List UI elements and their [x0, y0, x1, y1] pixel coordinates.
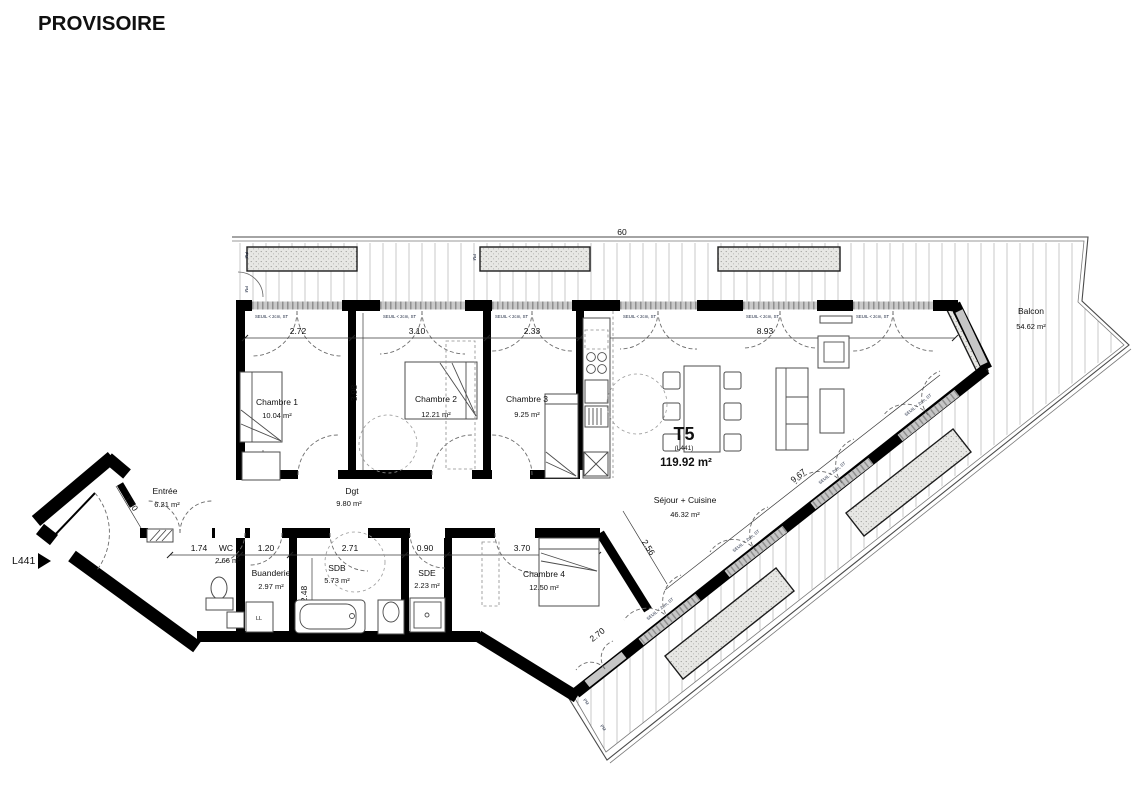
sill-label: SEUIL < 2cm, ST	[746, 314, 780, 319]
unit-marker-label: L441	[12, 555, 36, 567]
bed-chambre1	[240, 372, 282, 442]
room-area-dgt: 9.80 m²	[336, 499, 362, 508]
kitchen-sink	[585, 406, 608, 427]
railing-dim: 60	[617, 227, 627, 237]
room-name-sejour: Séjour + Cuisine	[654, 495, 717, 505]
dim-depth: 3.98	[349, 384, 359, 401]
sofa	[776, 368, 808, 450]
room-area-entree: 6.21 m²	[154, 500, 180, 509]
wc-counter	[206, 598, 233, 610]
room-area-chambre3: 9.25 m²	[514, 410, 540, 419]
room-name-chambre3: Chambre 3	[506, 394, 548, 404]
room-name-chambre1: Chambre 1	[256, 397, 298, 407]
room-area-wc: 2.66 m²	[215, 556, 241, 565]
room-area-chambre2: 12.21 m²	[421, 410, 451, 419]
closet	[242, 452, 280, 480]
dim-wc: 1.74	[191, 543, 208, 553]
door-swings	[52, 311, 940, 670]
planter	[247, 247, 357, 271]
dim-sejour-diag: 9.67	[789, 466, 808, 484]
wc-toilet	[227, 612, 244, 628]
washer-label: LL	[256, 616, 262, 622]
turning-circle	[607, 374, 667, 434]
room-name-sdb: SDB	[328, 563, 346, 573]
dim-sdb: 2.71	[342, 543, 359, 553]
turning-circle	[359, 415, 417, 473]
room-area-chambre1: 10.04 m²	[262, 411, 292, 420]
room-name-buanderie: Buanderie	[252, 568, 291, 578]
entry-door-arc	[95, 493, 109, 570]
dim-ch3: 2.33	[524, 326, 541, 336]
planter	[718, 247, 840, 271]
pm-marker: PM	[472, 254, 477, 261]
room-area-balcon: 54.62 m²	[1016, 322, 1046, 331]
dim-ch4: 3.70	[514, 543, 531, 553]
shower	[410, 598, 445, 632]
floorplan-drawing: 60 PM PM PM PM PM	[0, 0, 1143, 800]
bed-chambre3	[545, 394, 578, 478]
apartment-type: T5	[673, 424, 694, 444]
room-name-dgt: Dgt	[345, 486, 359, 496]
chair	[724, 372, 741, 389]
room-name-sde: SDE	[418, 568, 436, 578]
sdb-counter	[378, 600, 404, 634]
radiator	[820, 316, 852, 323]
floorplan-sheet: 60 PM PM PM PM PM	[0, 0, 1143, 800]
room-name-chambre4: Chambre 4	[523, 569, 565, 579]
unit-marker-arrow-icon	[38, 553, 51, 569]
planter	[480, 247, 590, 271]
room-name-entree: Entrée	[152, 486, 177, 496]
room-area-sde: 2.23 m²	[414, 581, 440, 590]
dim-ch1: 2.72	[290, 326, 307, 336]
title-block: PROVISOIRE L441	[12, 12, 166, 569]
door-arc-entree-right	[180, 501, 212, 533]
dim-balcony-diag: 2.70	[588, 625, 607, 643]
chair	[663, 403, 680, 420]
sheet-title: PROVISOIRE	[38, 12, 166, 35]
chair	[724, 403, 741, 420]
dim-sejour: 8.93	[757, 326, 774, 336]
dim-sde: 0.90	[417, 543, 434, 553]
wardrobe-chambre4	[482, 542, 499, 606]
pm-marker: PM	[244, 252, 249, 259]
apartment-area: 119.92 m²	[660, 457, 712, 469]
sill-label: SEUIL < 2cm, ST	[623, 314, 657, 319]
wc-basin	[211, 577, 227, 599]
room-name-balcon: Balcon	[1018, 306, 1044, 316]
chair	[663, 372, 680, 389]
chair	[724, 434, 741, 451]
door-arc-chambre3	[492, 435, 532, 475]
room-name-wc: WC	[219, 543, 233, 553]
dim-ch4-diag: 2.56	[640, 538, 658, 558]
door-arc-chambre1	[298, 435, 338, 475]
sill-label: SEUIL < 2cm, ST	[383, 314, 417, 319]
room-area-sdb: 5.73 m²	[324, 576, 350, 585]
room-area-buanderie: 2.97 m²	[258, 582, 284, 591]
dim-ch2: 3.10	[409, 326, 426, 336]
pm-marker: PM	[244, 286, 249, 293]
room-area-sejour: 46.32 m²	[670, 510, 700, 519]
dim-vestibule: 1.30	[123, 494, 141, 514]
sill-label: SEUIL < 2cm, ST	[255, 314, 289, 319]
door-arc-chambre4	[495, 533, 535, 573]
oven	[585, 380, 608, 403]
coffee-table	[820, 389, 844, 433]
apartment-ref: (L441)	[675, 445, 694, 452]
room-name-chambre2: Chambre 2	[415, 394, 457, 404]
room-area-chambre4: 12.50 m²	[529, 583, 559, 592]
sill-label: SEUIL < 2cm, ST	[495, 314, 529, 319]
sill-label: SEUIL < 2cm, ST	[856, 314, 890, 319]
dim-buanderie: 1.20	[258, 543, 275, 553]
